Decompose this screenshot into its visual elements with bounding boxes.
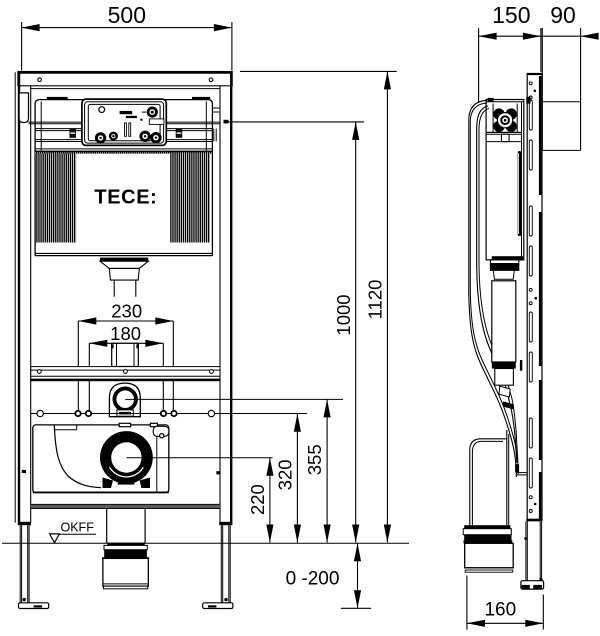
svg-text:320: 320: [275, 459, 296, 490]
svg-text:OKFF: OKFF: [61, 521, 95, 535]
svg-text:220: 220: [247, 484, 268, 515]
svg-text:1000: 1000: [333, 294, 354, 335]
svg-text:TECE:: TECE:: [94, 186, 157, 208]
svg-text:160: 160: [484, 600, 516, 621]
svg-text:150: 150: [492, 2, 530, 28]
svg-text:90: 90: [550, 2, 576, 28]
svg-text:180: 180: [110, 323, 141, 344]
svg-text:0 -200: 0 -200: [286, 569, 340, 590]
svg-text:355: 355: [304, 444, 325, 475]
svg-text:1120: 1120: [365, 280, 386, 320]
svg-text:230: 230: [111, 301, 142, 322]
svg-text:500: 500: [108, 2, 146, 28]
